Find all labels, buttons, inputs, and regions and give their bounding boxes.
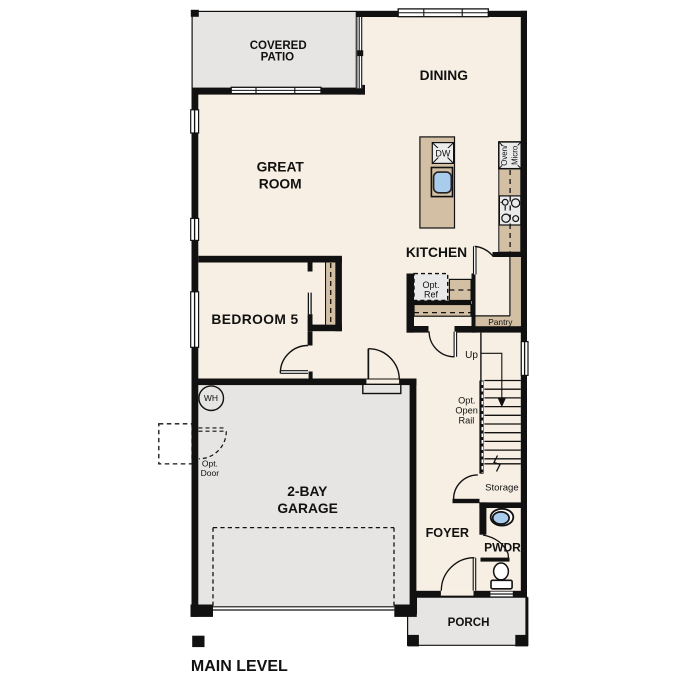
svg-text:GARAGE: GARAGE <box>277 501 338 516</box>
svg-text:WH: WH <box>204 393 218 403</box>
svg-text:Oven/: Oven/ <box>500 144 509 166</box>
svg-text:DW: DW <box>435 149 450 159</box>
svg-text:Opt.: Opt. <box>458 396 475 406</box>
svg-text:Open: Open <box>455 406 477 416</box>
svg-text:FOYER: FOYER <box>426 526 469 540</box>
svg-text:Door: Door <box>201 468 220 478</box>
svg-text:Storage: Storage <box>485 483 519 494</box>
svg-text:2-BAY: 2-BAY <box>287 484 327 499</box>
svg-text:PWDR: PWDR <box>484 541 521 555</box>
svg-text:Rail: Rail <box>458 416 474 426</box>
svg-text:DINING: DINING <box>420 68 468 83</box>
svg-text:Up: Up <box>465 350 478 361</box>
svg-text:ROOM: ROOM <box>259 176 302 191</box>
svg-text:COVERED: COVERED <box>250 40 307 52</box>
svg-text:MAIN LEVEL: MAIN LEVEL <box>191 658 288 675</box>
svg-text:PATIO: PATIO <box>261 52 294 64</box>
svg-text:PORCH: PORCH <box>448 616 490 629</box>
svg-text:KITCHEN: KITCHEN <box>406 245 467 260</box>
svg-text:GREAT: GREAT <box>257 160 305 175</box>
svg-text:BEDROOM 5: BEDROOM 5 <box>211 312 298 327</box>
svg-text:Opt.: Opt. <box>202 459 218 469</box>
svg-text:Pantry: Pantry <box>488 317 513 327</box>
svg-text:Ref: Ref <box>424 290 439 300</box>
svg-text:Opt.: Opt. <box>422 280 439 290</box>
svg-text:Micro: Micro <box>510 145 519 165</box>
